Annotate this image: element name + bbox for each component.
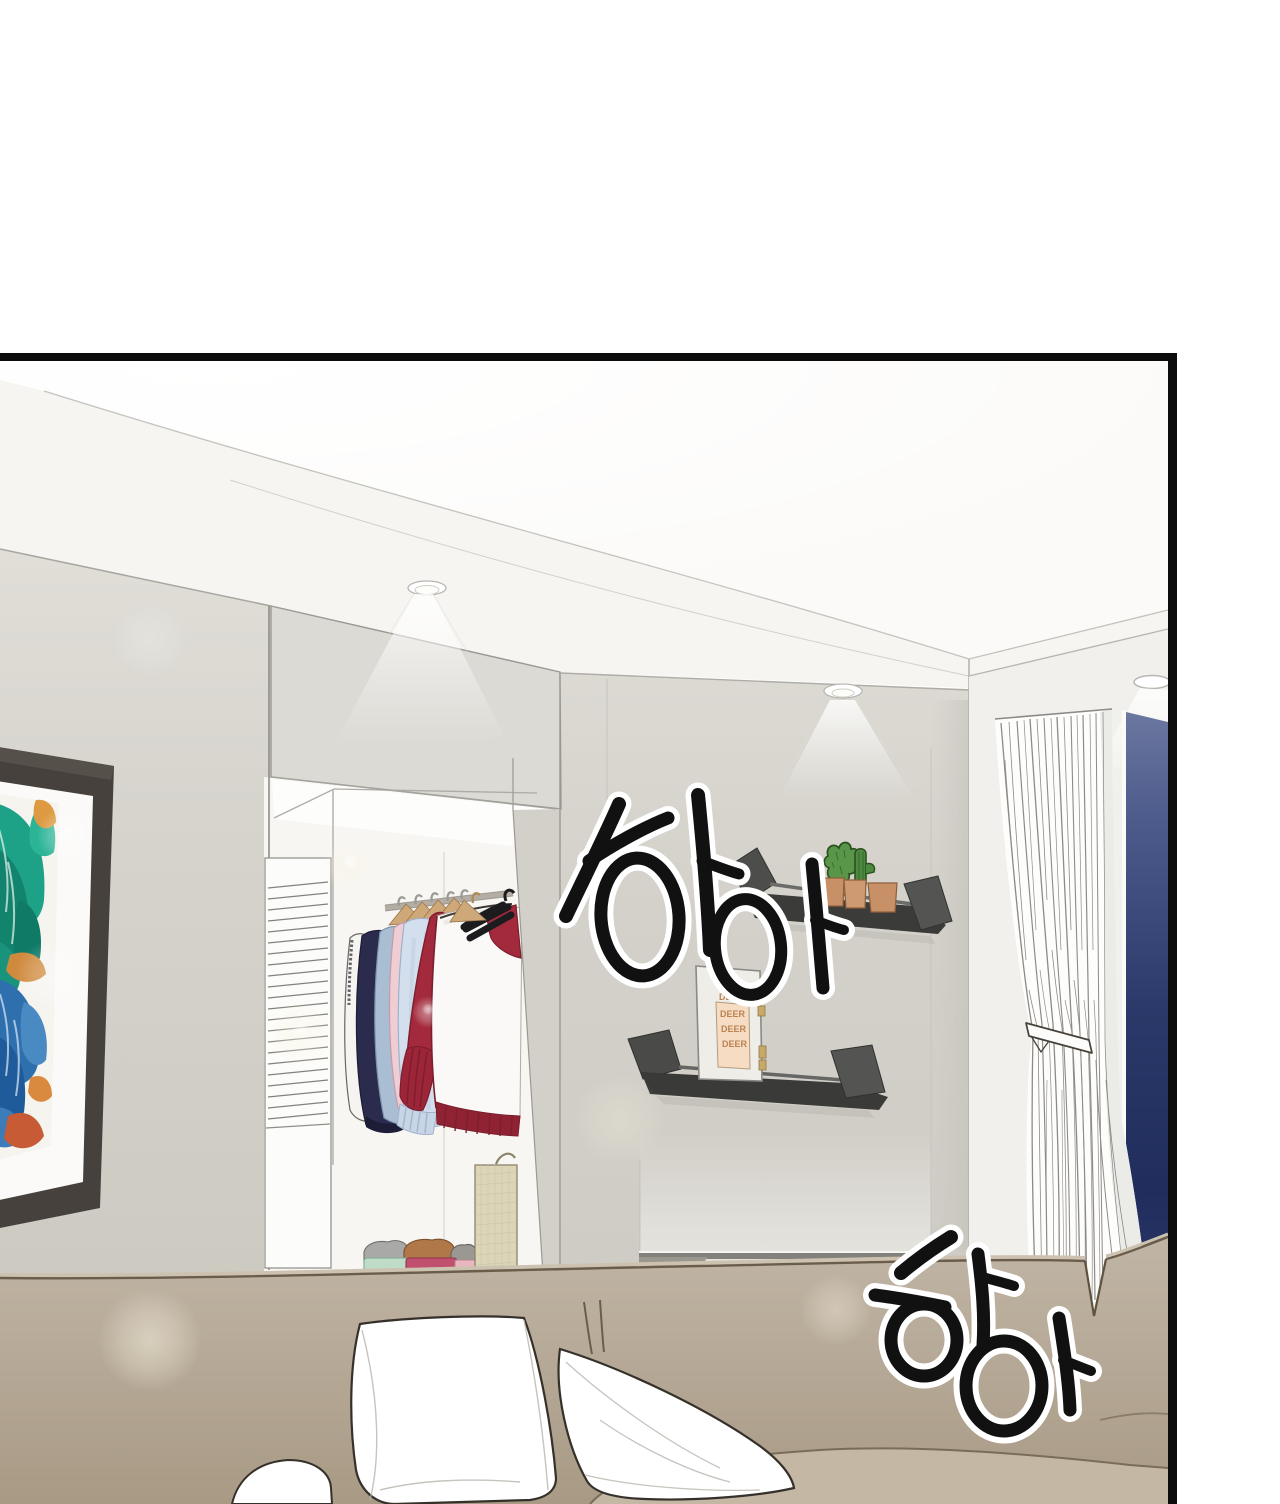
svg-text:DEER: DEER <box>720 1009 746 1019</box>
svg-text:DEER: DEER <box>721 1024 747 1034</box>
svg-text:DEER: DEER <box>722 1039 748 1049</box>
